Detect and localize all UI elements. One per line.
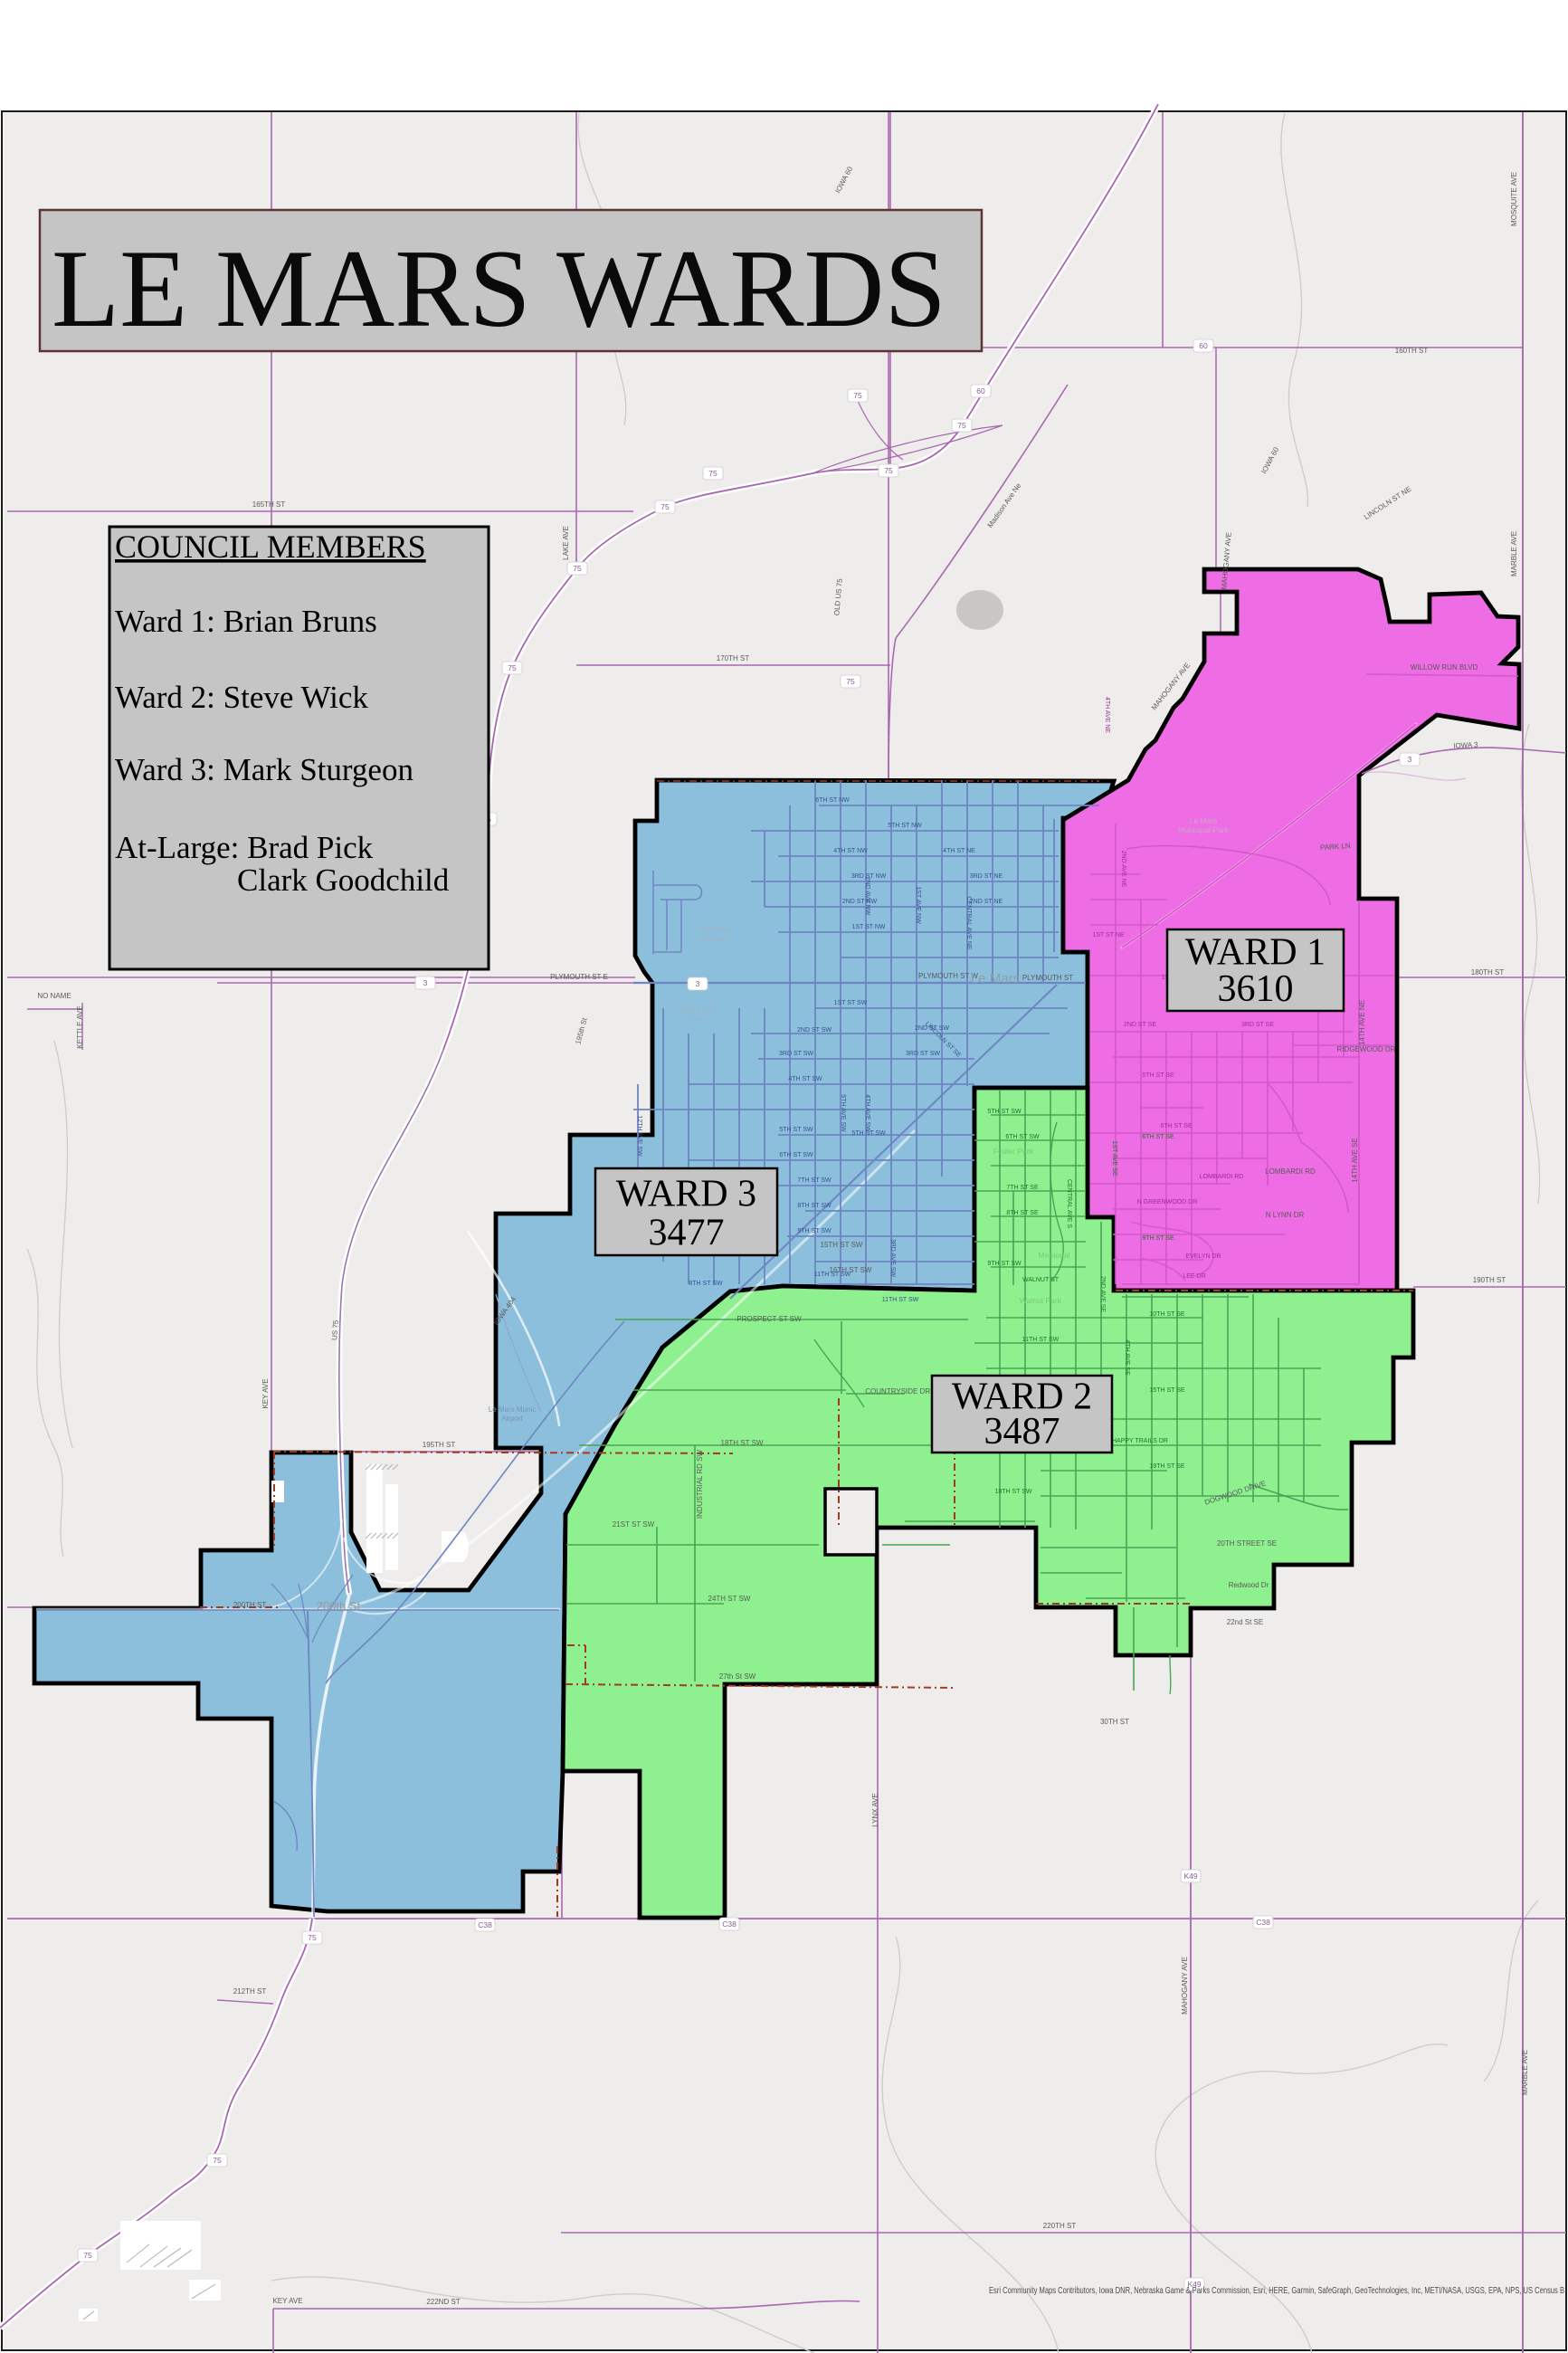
svg-text:75: 75	[884, 466, 893, 475]
svg-text:2ND AVE NW: 2ND AVE NW	[864, 877, 870, 916]
svg-text:3610: 3610	[1218, 968, 1294, 1010]
svg-text:1ST AVE SE: 1ST AVE SE	[1111, 1140, 1117, 1176]
svg-text:Le Mars: Le Mars	[971, 971, 1020, 986]
svg-text:60: 60	[976, 386, 985, 395]
svg-text:200TH ST: 200TH ST	[233, 1601, 267, 1609]
svg-text:2ND ST SE: 2ND ST SE	[1124, 1022, 1156, 1028]
svg-text:15TH ST SW: 15TH ST SW	[821, 1241, 863, 1249]
svg-text:COUNTRYSIDE DR S: COUNTRYSIDE DR S	[865, 1387, 936, 1396]
svg-text:11TH ST SW: 11TH ST SW	[882, 1297, 919, 1303]
svg-text:8TH ST SW: 8TH ST SW	[797, 1203, 832, 1209]
svg-text:KEY AVE: KEY AVE	[272, 2297, 302, 2305]
svg-text:75: 75	[660, 502, 670, 511]
svg-text:3: 3	[696, 979, 700, 988]
svg-text:1ST ST SW: 1ST ST SW	[834, 1000, 868, 1006]
svg-text:WILLOW RUN BLVD: WILLOW RUN BLVD	[1411, 663, 1478, 672]
svg-text:8TH ST SW: 8TH ST SW	[689, 1281, 723, 1287]
svg-text:WALNUT ST: WALNUT ST	[1022, 1277, 1060, 1283]
svg-text:MAHOGANY AVE: MAHOGANY AVE	[1181, 1957, 1189, 2015]
svg-text:N GREENWOOD DR: N GREENWOOD DR	[1137, 1199, 1198, 1205]
svg-text:West Floyd: West Floyd	[678, 1005, 717, 1014]
svg-text:Le Mars: Le Mars	[1190, 816, 1218, 825]
svg-text:KEY AVE: KEY AVE	[261, 1378, 270, 1408]
svg-text:PROSPECT ST SW: PROSPECT ST SW	[736, 1315, 802, 1323]
svg-text:75: 75	[508, 663, 517, 672]
svg-text:222ND ST: 222ND ST	[426, 2298, 460, 2306]
svg-text:CENTRAL AVE NE: CENTRAL AVE NE	[965, 896, 972, 949]
svg-text:NO NAME: NO NAME	[37, 992, 71, 1000]
svg-text:C38: C38	[722, 1920, 736, 1929]
svg-text:N LYNN DR: N LYNN DR	[1266, 1211, 1305, 1219]
svg-text:6TH ST SW: 6TH ST SW	[779, 1152, 813, 1158]
svg-text:170TH ST: 170TH ST	[717, 654, 750, 662]
svg-text:21ST ST SW: 21ST ST SW	[613, 1520, 655, 1529]
svg-text:2ND ST NE: 2ND ST NE	[970, 899, 1003, 905]
svg-text:6TH ST NW: 6TH ST NW	[815, 797, 850, 804]
svg-text:2ND ST SW: 2ND ST SW	[797, 1027, 832, 1034]
svg-text:Park: Park	[689, 1014, 705, 1023]
svg-text:11TH ST SW: 11TH ST SW	[814, 1272, 851, 1278]
svg-text:4TH AVE SW: 4TH AVE SW	[864, 1094, 870, 1132]
svg-text:Municipal Park: Municipal Park	[1178, 825, 1229, 834]
svg-text:27th St SW: 27th St SW	[719, 1672, 756, 1681]
svg-text:9TH ST SW: 9TH ST SW	[987, 1261, 1022, 1267]
svg-text:8TH ST SE: 8TH ST SE	[1006, 1210, 1039, 1216]
svg-text:212TH ST: 212TH ST	[233, 1987, 267, 1996]
svg-text:190TH ST: 190TH ST	[1473, 1276, 1506, 1284]
svg-text:COUNCIL MEMBERS: COUNCIL MEMBERS	[115, 529, 426, 565]
svg-text:Memorial: Memorial	[1039, 1251, 1070, 1260]
svg-text:6TH ST SE: 6TH ST SE	[1160, 1123, 1193, 1129]
svg-text:PLYMOUTH ST W: PLYMOUTH ST W	[918, 972, 978, 980]
svg-text:MARBLE AVE: MARBLE AVE	[1521, 2050, 1529, 2095]
svg-text:EVELYN DR: EVELYN DR	[1185, 1253, 1221, 1260]
svg-text:Esri Community Maps Contributo: Esri Community Maps Contributors, Iowa D…	[989, 2285, 1564, 2296]
svg-text:C38: C38	[478, 1920, 492, 1929]
svg-text:1ST ST NW: 1ST ST NW	[851, 924, 885, 930]
svg-text:Ward 2: Steve Wick: Ward 2: Steve Wick	[115, 680, 368, 715]
svg-text:22nd St SE: 22nd St SE	[1227, 1618, 1263, 1626]
svg-text:75: 75	[853, 391, 862, 400]
svg-text:75: 75	[957, 421, 966, 430]
svg-text:US 75: US 75	[330, 1319, 340, 1340]
svg-text:Le Mars Munic: Le Mars Munic	[489, 1405, 536, 1414]
svg-text:5TH ST SW: 5TH ST SW	[851, 1130, 886, 1137]
svg-text:3RD ST SW: 3RD ST SW	[906, 1051, 940, 1057]
svg-text:Foster Park: Foster Park	[993, 1147, 1034, 1156]
svg-text:24TH ST SW: 24TH ST SW	[708, 1595, 751, 1603]
svg-text:Walnut Park: Walnut Park	[1020, 1296, 1062, 1305]
svg-text:LYNX AVE: LYNX AVE	[871, 1793, 879, 1827]
svg-text:15TH ST SE: 15TH ST SE	[1149, 1387, 1184, 1394]
svg-text:LAKE AVE: LAKE AVE	[562, 526, 570, 560]
svg-text:30TH ST: 30TH ST	[1100, 1718, 1129, 1726]
svg-text:LEE DR: LEE DR	[1183, 1273, 1205, 1280]
svg-text:4TH AVE NE: 4TH AVE NE	[1104, 697, 1110, 733]
svg-text:195TH ST: 195TH ST	[423, 1441, 456, 1449]
svg-text:WARD 1: WARD 1	[1185, 932, 1326, 974]
svg-text:MARBLE AVE: MARBLE AVE	[1510, 531, 1518, 576]
svg-text:14TH AVE NE: 14TH AVE NE	[1358, 1000, 1366, 1045]
svg-text:RIDGEWOOD DR: RIDGEWOOD DR	[1337, 1045, 1396, 1053]
svg-text:2ND AVE NE: 2ND AVE NE	[1120, 851, 1126, 888]
svg-text:165TH ST: 165TH ST	[252, 500, 286, 509]
svg-text:3RD ST SE: 3RD ST SE	[1241, 1022, 1274, 1028]
svg-text:75: 75	[846, 677, 855, 686]
svg-text:PLYMOUTH ST E: PLYMOUTH ST E	[550, 973, 608, 981]
svg-text:Complex: Complex	[699, 934, 730, 943]
svg-text:6TH ST SE: 6TH ST SE	[1142, 1134, 1174, 1140]
svg-text:75: 75	[708, 469, 717, 478]
svg-text:Airport: Airport	[501, 1415, 523, 1423]
svg-text:Riverview: Riverview	[698, 925, 733, 934]
svg-text:WARD 3: WARD 3	[616, 1173, 756, 1215]
svg-text:HAPPY TRAILS DR: HAPPY TRAILS DR	[1112, 1438, 1168, 1444]
svg-text:180TH ST: 180TH ST	[1471, 968, 1505, 976]
svg-text:C38: C38	[1256, 1918, 1270, 1927]
svg-text:160TH ST: 160TH ST	[1395, 347, 1429, 355]
svg-text:18TH ST SW: 18TH ST SW	[721, 1439, 764, 1447]
svg-text:4TH ST NE: 4TH ST NE	[943, 848, 975, 854]
svg-text:LE MARS WARDS: LE MARS WARDS	[52, 226, 946, 350]
svg-text:11TH ST SW: 11TH ST SW	[1022, 1337, 1060, 1343]
svg-text:7TH ST SW: 7TH ST SW	[797, 1177, 832, 1184]
svg-text:4TH ST NW: 4TH ST NW	[833, 848, 868, 854]
svg-text:200th St: 200th St	[317, 1599, 361, 1613]
svg-text:18TH ST SW: 18TH ST SW	[994, 1489, 1031, 1495]
svg-text:Ward 1: Brian Bruns: Ward 1: Brian Bruns	[115, 604, 377, 639]
svg-text:2ND ST NW: 2ND ST NW	[842, 899, 878, 905]
svg-text:Clark Goodchild: Clark Goodchild	[237, 862, 450, 898]
svg-text:2ND AVE SE: 2ND AVE SE	[1099, 1276, 1106, 1313]
svg-text:3477: 3477	[649, 1212, 725, 1253]
svg-text:3RD ST NE: 3RD ST NE	[970, 873, 1003, 880]
svg-text:10TH ST SE: 10TH ST SE	[1149, 1311, 1184, 1318]
svg-text:9TH ST SW: 9TH ST SW	[797, 1228, 832, 1234]
svg-text:220TH ST: 220TH ST	[1043, 2222, 1077, 2230]
svg-text:3487: 3487	[984, 1411, 1060, 1453]
svg-text:20TH STREET SE: 20TH STREET SE	[1217, 1539, 1277, 1548]
svg-text:1ST ST NE: 1ST ST NE	[1092, 932, 1124, 938]
svg-text:Redwood Dr: Redwood Dr	[1229, 1581, 1269, 1589]
svg-text:At-Large: Brad Pick: At-Large: Brad Pick	[115, 830, 374, 865]
svg-text:75: 75	[213, 2156, 222, 2165]
svg-text:PLYMOUTH ST: PLYMOUTH ST	[1022, 974, 1073, 982]
svg-text:75: 75	[573, 564, 582, 573]
svg-text:75: 75	[308, 1933, 317, 1942]
svg-text:5TH ST NW: 5TH ST NW	[888, 823, 922, 829]
svg-text:5TH ST SE: 5TH ST SE	[1142, 1072, 1174, 1079]
svg-text:7TH ST SE: 7TH ST SE	[1006, 1185, 1039, 1191]
svg-text:5TH ST SW: 5TH ST SW	[987, 1109, 1022, 1115]
svg-text:19TH ST SE: 19TH ST SE	[1149, 1463, 1184, 1470]
svg-text:3: 3	[1408, 755, 1412, 764]
svg-text:LOMBARDI RD: LOMBARDI RD	[1200, 1174, 1244, 1180]
svg-text:14TH AVE SE: 14TH AVE SE	[1351, 1138, 1359, 1183]
svg-text:75: 75	[83, 2251, 92, 2260]
svg-text:5TH ST SW: 5TH ST SW	[779, 1127, 813, 1133]
svg-text:12TH AVE SW: 12TH AVE SW	[636, 1115, 642, 1157]
svg-text:3RD ST SW: 3RD ST SW	[779, 1051, 813, 1057]
svg-text:3RD AVE SW: 3RD AVE SW	[889, 1239, 896, 1278]
svg-text:Ward 3: Mark Sturgeon: Ward 3: Mark Sturgeon	[115, 752, 413, 787]
svg-text:CENTRAL AVE S: CENTRAL AVE S	[1066, 1179, 1072, 1228]
svg-text:3: 3	[423, 978, 428, 987]
svg-text:4TH AVE SE: 4TH AVE SE	[1124, 1339, 1130, 1376]
svg-text:MOSQUITE AVE: MOSQUITE AVE	[1510, 172, 1518, 226]
svg-text:INDUSTRIAL RD SW: INDUSTRIAL RD SW	[696, 1449, 704, 1519]
svg-text:6TH ST SW: 6TH ST SW	[1005, 1134, 1040, 1140]
svg-text:KETTLE AVE: KETTLE AVE	[76, 1005, 84, 1048]
svg-text:1ST AVE NW: 1ST AVE NW	[915, 886, 921, 924]
svg-text:60: 60	[1199, 341, 1208, 350]
svg-text:LOMBARDI RD: LOMBARDI RD	[1265, 1167, 1316, 1176]
svg-text:9TH ST SE: 9TH ST SE	[1142, 1235, 1174, 1242]
svg-text:4TH ST SW: 4TH ST SW	[788, 1076, 822, 1082]
svg-text:5TH AVE SW: 5TH AVE SW	[840, 1094, 846, 1132]
svg-text:IOWA 3: IOWA 3	[1453, 740, 1478, 749]
svg-text:K49: K49	[1183, 1872, 1197, 1881]
